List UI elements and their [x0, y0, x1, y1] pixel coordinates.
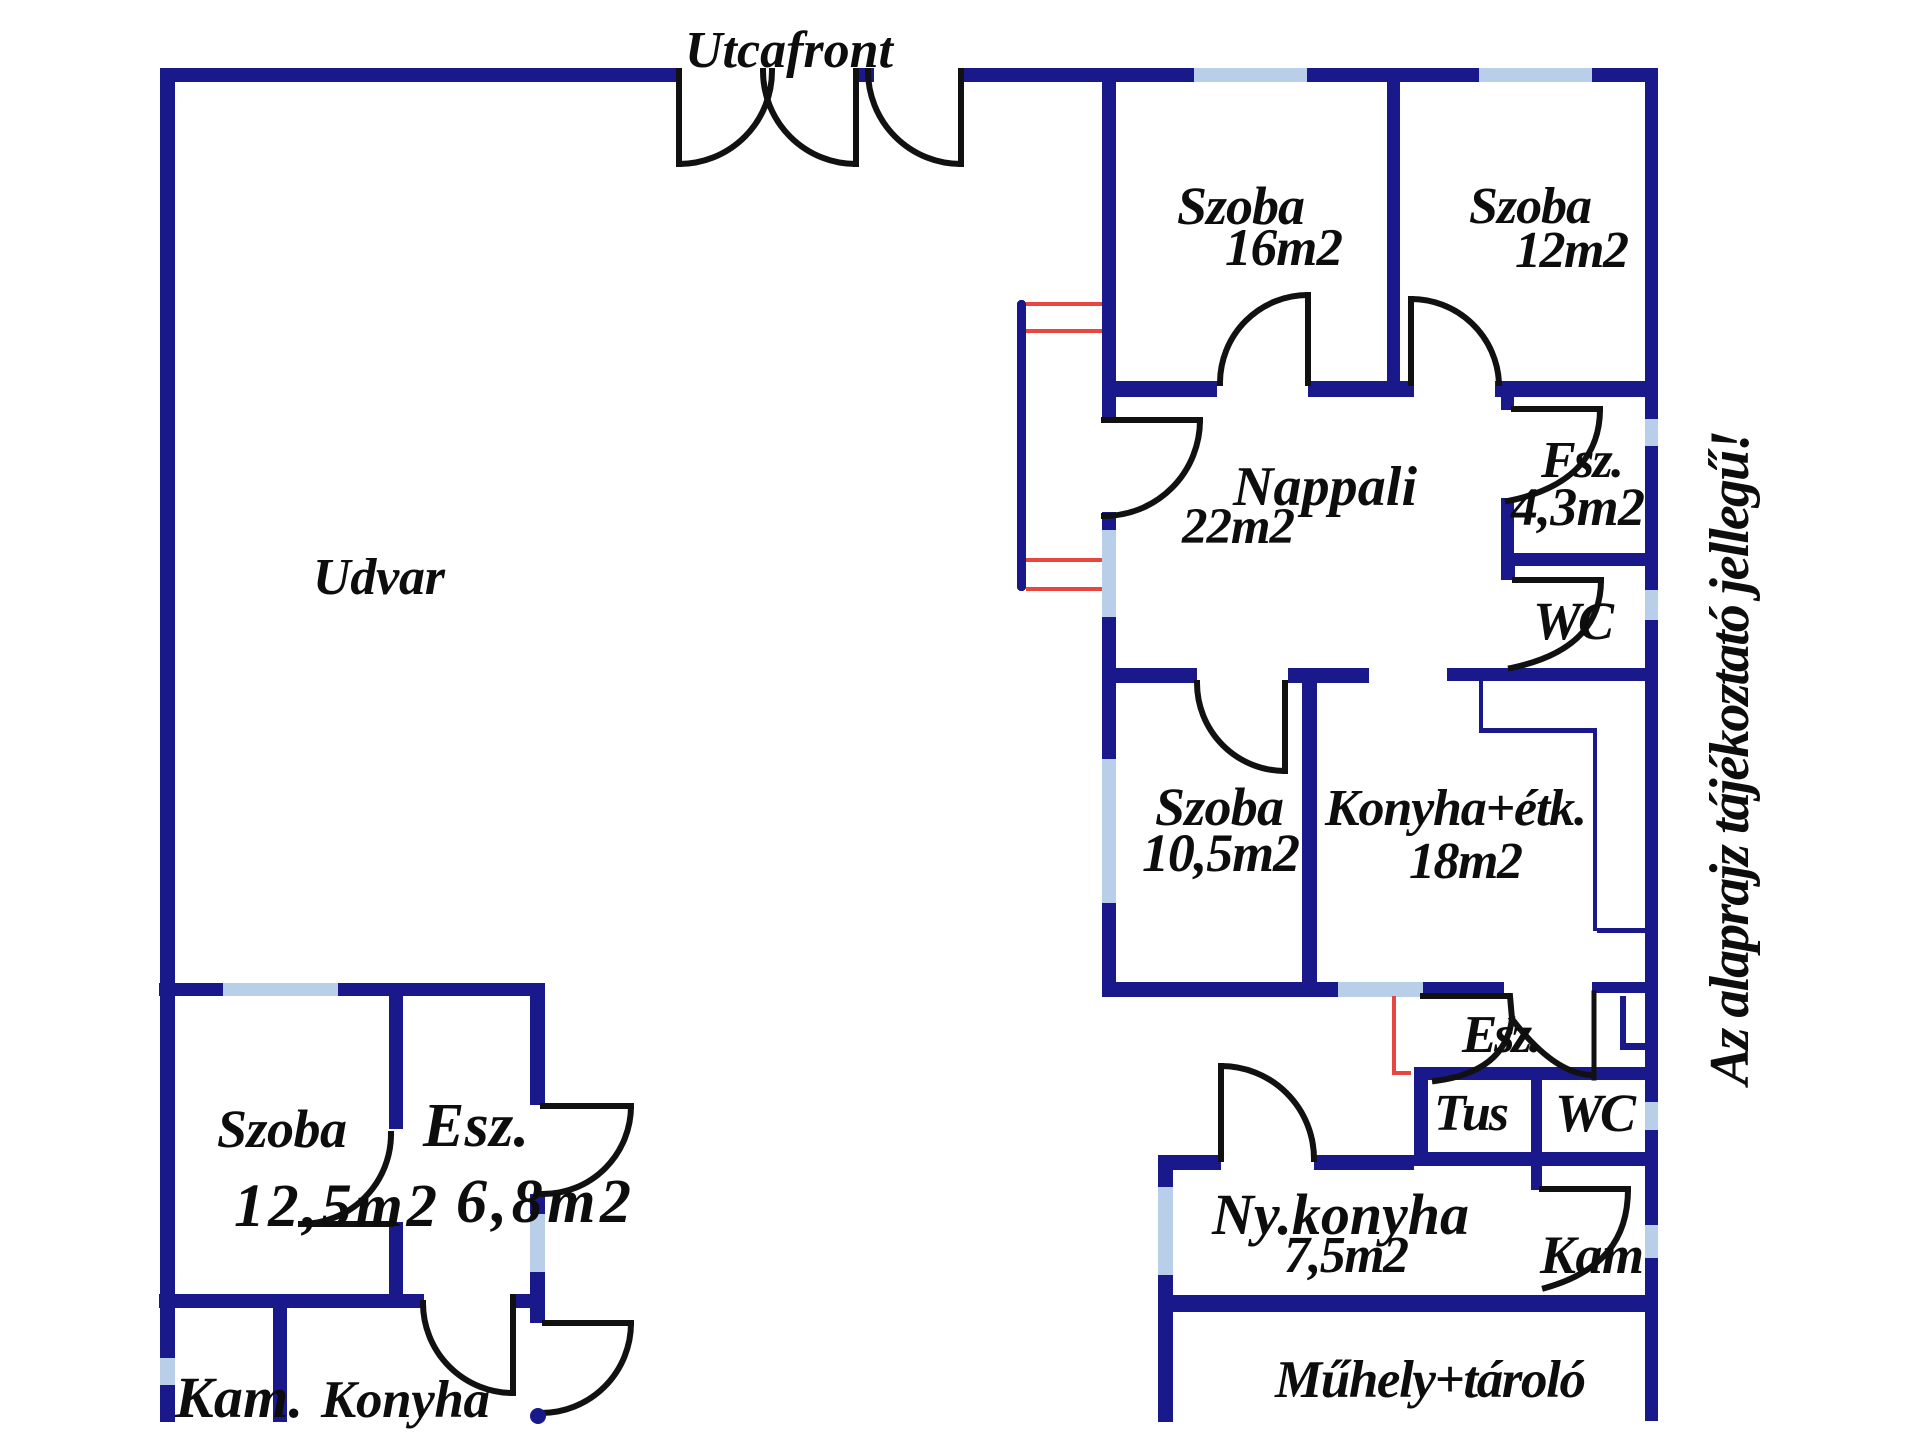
svg-text:Műhely+tároló: Műhely+tároló [1274, 1351, 1586, 1409]
svg-text:Udvar: Udvar [313, 549, 446, 606]
svg-text:Konyha+étk.: Konyha+étk. [1324, 780, 1587, 837]
svg-text:4,3m2: 4,3m2 [1510, 477, 1645, 537]
svg-text:Konyha: Konyha [320, 1371, 490, 1429]
svg-text:Utcafront: Utcafront [685, 22, 895, 79]
svg-text:Esz.: Esz. [1461, 1006, 1542, 1064]
svg-text:16m2: 16m2 [1225, 219, 1343, 277]
svg-text:18m2: 18m2 [1409, 833, 1523, 890]
svg-text:12m2: 12m2 [1515, 222, 1629, 279]
svg-text:22m2: 22m2 [1181, 499, 1295, 555]
svg-text:Kam.: Kam. [174, 1365, 303, 1430]
svg-text:Kam: Kam [1539, 1225, 1644, 1285]
svg-text:Esz.: Esz. [422, 1092, 529, 1160]
svg-text:WC: WC [1555, 1083, 1637, 1143]
svg-text:7,5m2: 7,5m2 [1284, 1227, 1409, 1284]
svg-text:10,5m2: 10,5m2 [1142, 823, 1300, 883]
svg-text:12,5m2: 12,5m2 [234, 1173, 437, 1240]
svg-text:Szoba: Szoba [217, 1099, 347, 1159]
svg-text:WC: WC [1533, 591, 1615, 651]
svg-text:Az alaprajz tájékoztató jelleg: Az alaprajz tájékoztató jellegű! [1699, 430, 1761, 1088]
svg-text:Tus: Tus [1434, 1085, 1509, 1142]
